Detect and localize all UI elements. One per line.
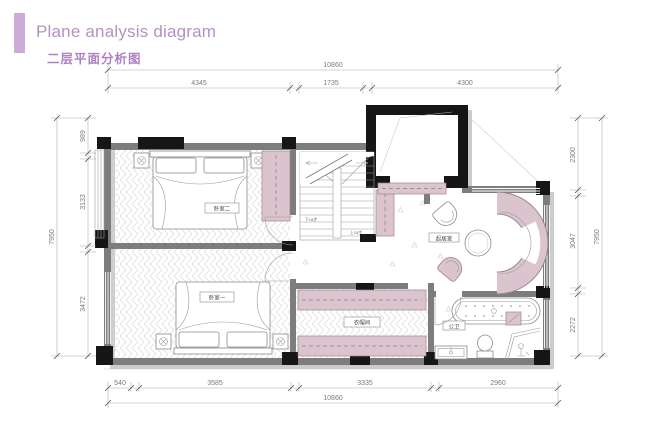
dimension-right: 2300 3047 2272 7950 (570, 115, 608, 359)
dimension-bottom: 540 3585 3335 2960 10860 (105, 380, 561, 408)
closet-label: 衣帽间 (354, 319, 371, 327)
dim-top-seg2: 1735 (323, 80, 339, 87)
floor-plan-drawing: 卧室二 卧室一 下18步 上18步 (0, 0, 650, 433)
toilet-icon (478, 335, 493, 351)
dim-bottom-seg3: 3335 (357, 380, 373, 387)
bedroom1-label: 卧室一 (209, 294, 226, 302)
stair-down-label: 下18步 (305, 216, 317, 222)
stair-stringer (333, 168, 341, 238)
living-room: 起居室 (429, 201, 537, 283)
dim-bottom-overall: 10860 (323, 395, 343, 402)
bed1-headboard (174, 348, 272, 354)
dim-right-seg1: 2300 (570, 147, 577, 163)
bed2-pillow-left (156, 158, 196, 173)
dim-left-seg1: 989 (80, 130, 87, 142)
bed1-pillow-right (227, 332, 267, 347)
bedroom1: 卧室一 (156, 282, 288, 354)
bed2-headboard (150, 151, 250, 157)
dim-right-seg2: 3047 (570, 233, 577, 249)
armchair-icon (432, 201, 462, 230)
dimension-top: 10860 4345 1735 4300 (105, 62, 561, 94)
dim-left-overall: 7950 (49, 229, 56, 245)
bathroom: 公卫 (435, 298, 540, 360)
dim-top-seg3: 4300 (457, 80, 473, 87)
void-block (366, 105, 468, 188)
dim-bottom-seg1: 540 (114, 380, 126, 387)
dim-right-seg3: 2272 (570, 317, 577, 333)
dim-bottom-seg2: 3585 (207, 380, 223, 387)
dim-right-overall: 7950 (594, 229, 601, 245)
armchair-icon (437, 253, 467, 282)
floor-plan-page: Plane analysis diagram 二层平面分析图 (0, 0, 650, 433)
bathtub-icon (452, 298, 540, 324)
dimension-left: 989 3133 3472 7950 (49, 115, 96, 359)
bed2-pillow-right (204, 158, 244, 173)
dim-top-overall: 10860 (323, 62, 343, 69)
coffee-table-icon (465, 230, 491, 256)
bedroom2-label: 卧室二 (214, 205, 231, 213)
sofa-mid-cushion (526, 226, 530, 260)
dim-top-seg1: 4345 (191, 80, 207, 87)
dim-bottom-seg4: 2960 (490, 380, 506, 387)
bed1-pillow-left (179, 332, 219, 347)
shower-head-icon (519, 344, 524, 349)
dim-left-seg3: 3472 (80, 296, 87, 312)
bay-window-left (95, 150, 104, 238)
living-label: 起居室 (436, 234, 453, 242)
dim-left-seg2: 3133 (80, 194, 87, 210)
bath-label: 公卫 (448, 323, 460, 330)
